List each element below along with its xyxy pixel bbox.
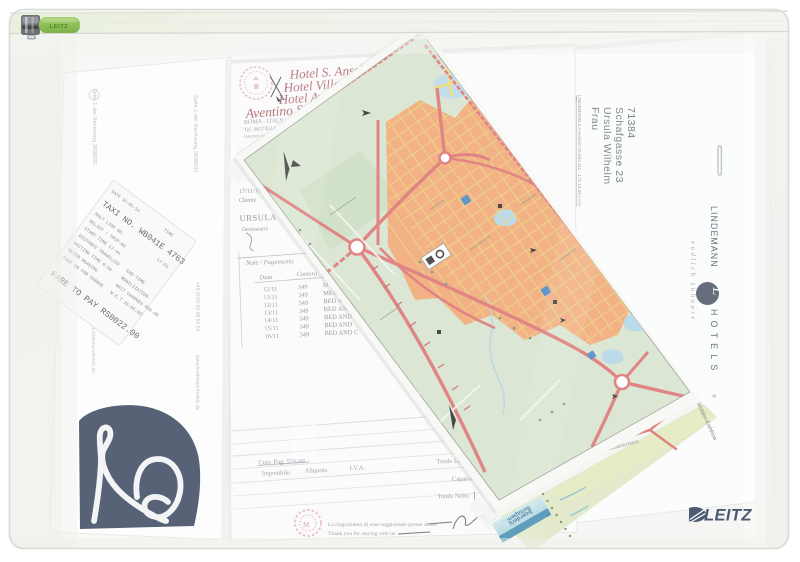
svg-text:LEITZ: LEITZ (50, 24, 69, 30)
svg-text:LEITZ: LEITZ (704, 507, 752, 525)
